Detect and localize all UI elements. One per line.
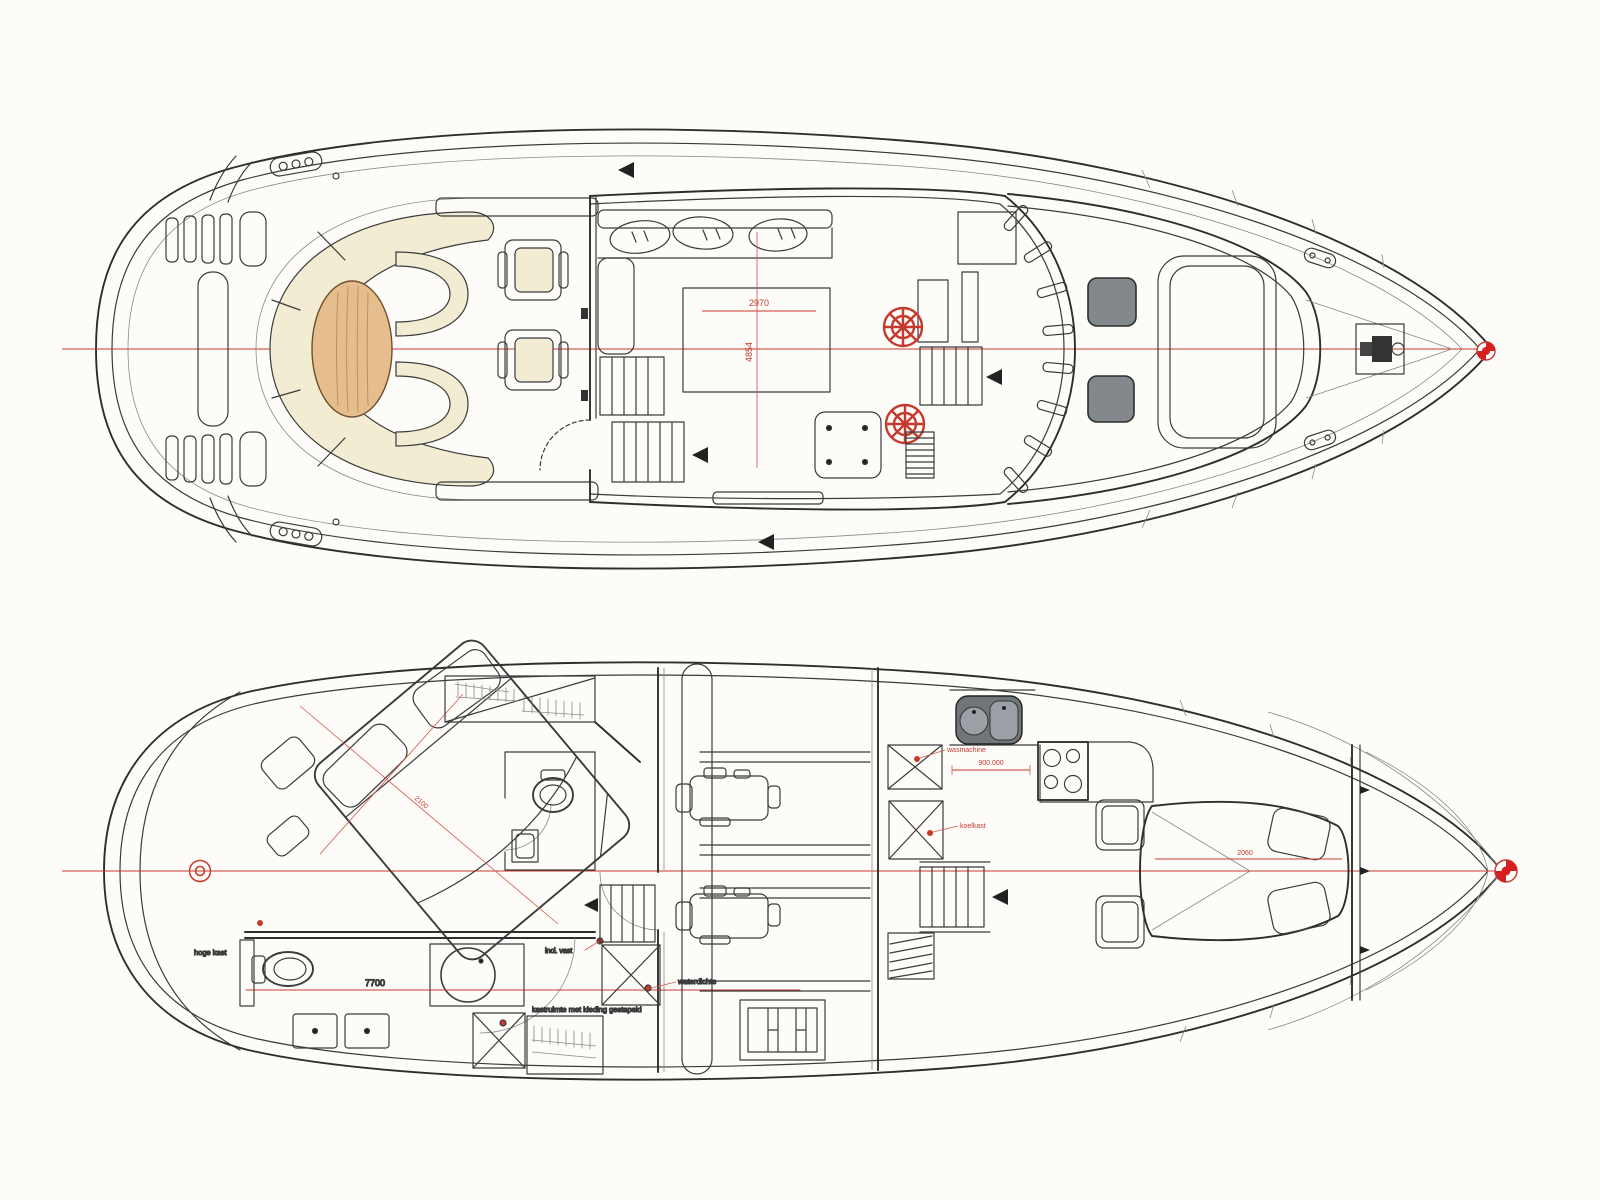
salon-stairs-down <box>920 347 1002 405</box>
engine-room <box>676 664 878 1074</box>
shower <box>430 944 524 1006</box>
helm-chair <box>498 240 568 390</box>
drawer-cabinet <box>293 1014 389 1048</box>
nightstand <box>258 734 318 859</box>
helm-station <box>884 212 1016 443</box>
label-fridge: koelkast <box>960 823 986 830</box>
salon-sofa <box>598 210 832 354</box>
dim-table-width: 2970 <box>749 298 769 308</box>
deck-hatch <box>1088 278 1136 326</box>
galley: wasmachine koelkast 900.000 <box>888 690 1153 979</box>
louver-locker <box>888 933 934 979</box>
drawing-sheet: 2970 4854 <box>0 0 1600 1200</box>
upper-deck-plan: 2970 4854 <box>62 129 1495 568</box>
d-seat <box>396 362 468 446</box>
master-bed <box>308 634 635 966</box>
generator-box <box>740 1000 825 1060</box>
pillow <box>408 645 505 733</box>
dim-galley: 900.000 <box>978 760 1003 767</box>
day-head <box>505 752 595 870</box>
dim-table-length: 4854 <box>744 342 754 362</box>
cockpit-table <box>312 281 392 417</box>
dim-vberth: 2060 <box>1237 850 1253 857</box>
lower-deck-plan: 2100 <box>62 634 1517 1080</box>
locker-x-icon <box>602 945 660 1005</box>
label-incl-vast: incl. vast <box>545 948 572 955</box>
wardrobe-hangers <box>445 676 595 722</box>
bow-datum-icon <box>1477 342 1495 360</box>
cockpit-stairs <box>600 357 708 482</box>
engine <box>676 768 780 826</box>
corridor-stairs: waterdichte <box>584 885 716 1005</box>
locker-x-icon <box>473 1013 525 1068</box>
direction-arrow-icon <box>618 162 634 178</box>
bedside-cabinet <box>1096 800 1144 948</box>
ensuite-bathroom: 7700 hoge kast incl. vast kastruimte met… <box>194 938 800 1074</box>
toilet <box>252 952 313 986</box>
companionway-stairs <box>920 862 1008 932</box>
ga-drawing: 2970 4854 <box>0 0 1600 1200</box>
sunpad <box>1158 256 1276 448</box>
d-seat <box>396 252 468 336</box>
engine <box>676 886 780 944</box>
bow-datum-icon <box>1495 860 1517 882</box>
vberth-cabin: 2060 <box>1096 745 1488 1000</box>
label-washer: wasmachine <box>946 747 986 754</box>
stove <box>1038 742 1088 800</box>
salon-misc <box>713 412 934 504</box>
card-table <box>815 412 881 478</box>
double-sink <box>956 696 1022 744</box>
sofa-cushions <box>608 215 808 257</box>
deck-hatch <box>1088 376 1134 422</box>
label-tall-cabinet: hoge kast <box>194 948 227 957</box>
dim-aft: 7700 <box>365 978 385 988</box>
label-wardrobe: kastruimte met kleding gestapeld <box>532 1005 642 1014</box>
locker-x-icon <box>888 745 943 859</box>
toilet <box>533 770 573 812</box>
salon-table: 2970 4854 <box>683 232 830 468</box>
direction-arrow-icon <box>758 534 774 550</box>
